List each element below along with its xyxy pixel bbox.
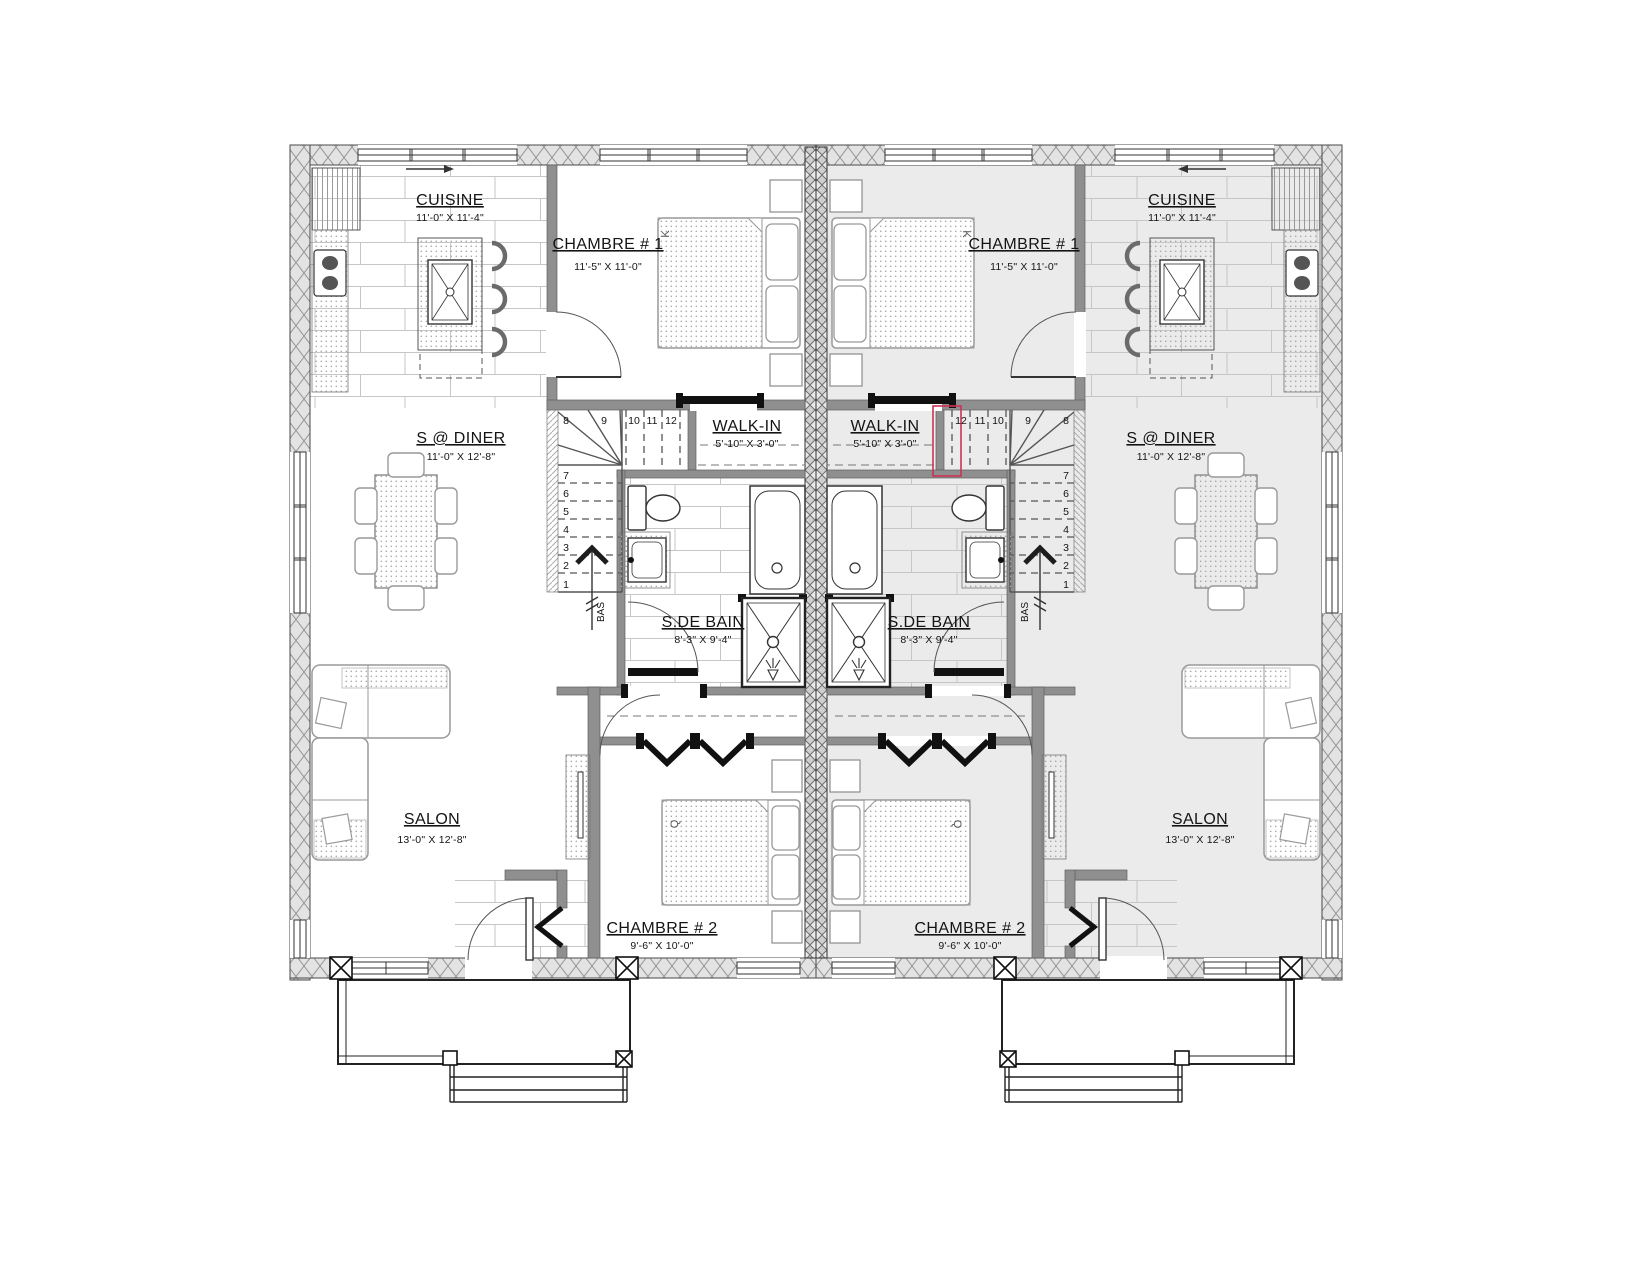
stair-num: 11: [975, 415, 986, 427]
room-label-cuisine-right: CUISINE: [1148, 192, 1216, 209]
room-label-chambre1-right: CHAMBRE # 1: [968, 236, 1079, 253]
room-dims-sdiner-right: 11'-0" X 12'-8": [1137, 451, 1206, 463]
tv: [578, 772, 583, 838]
throw-pillow: [322, 814, 352, 844]
stair-num: 6: [1063, 488, 1069, 500]
stair-num: 6: [563, 488, 569, 500]
throw-pillow: [316, 698, 347, 729]
room-label-chambre2-left: CHAMBRE # 2: [606, 920, 717, 937]
night-table: [772, 760, 802, 792]
bed-size-chambre1-left: K: [660, 230, 672, 238]
fridge: [312, 168, 360, 230]
room-label-salon-left: SALON: [404, 811, 460, 828]
stair-num: 10: [628, 415, 640, 427]
stair-num: 8: [1063, 415, 1069, 427]
floor-plan-drawing: CUISINE 11'-0" X 11'-4" CHAMBRE # 1 11'-…: [0, 0, 1650, 1275]
bath-door-leaf: [628, 668, 698, 676]
night-table: [772, 911, 802, 943]
bed-size-chambre1-right: K: [960, 230, 972, 238]
stair-num: 8: [563, 415, 569, 427]
stair-num: 4: [563, 524, 569, 536]
room-dims-walkin-right: 5'-10" X 3'-0": [853, 438, 916, 450]
stair-num: 9: [1025, 415, 1031, 427]
party-wall: [805, 147, 816, 958]
room-label-walkin-right: WALK-IN: [851, 418, 920, 435]
room-dims-walkin-left: 5'-10" X 3'-0": [715, 438, 778, 450]
stair-num: 12: [955, 415, 967, 427]
room-dims-cuisine-right: 11'-0" X 11'-4": [1148, 212, 1216, 224]
salon-furniture: [312, 665, 590, 860]
stair-num: 10: [992, 415, 1004, 427]
stair-num: 1: [563, 579, 569, 591]
stair-num: 7: [1063, 470, 1069, 482]
bed-size-chambre2-left: Q: [669, 819, 681, 828]
room-dims-sdebain-left: 8'-3" X 9'-4": [674, 634, 731, 646]
room-dims-sdiner-left: 11'-0" X 12'-8": [427, 451, 496, 463]
stair-num: 1: [1063, 579, 1069, 591]
bed-chambre2: [662, 760, 802, 943]
stair-num: 5: [1063, 506, 1069, 518]
stair-down-label-left: BAS: [596, 602, 607, 622]
shower: [742, 598, 805, 687]
room-label-sdiner-right: S @ DINER: [1126, 430, 1215, 447]
room-label-sdebain-right: S.DE BAIN: [888, 614, 971, 631]
burner: [322, 256, 338, 270]
room-dims-cuisine-left: 11'-0" X 11'-4": [416, 212, 484, 224]
bed-chambre1: [658, 180, 802, 386]
stair-num: 7: [563, 470, 569, 482]
room-label-cuisine-left: CUISINE: [416, 192, 484, 209]
floor-plan-page: CUISINE 11'-0" X 11'-4" CHAMBRE # 1 11'-…: [0, 0, 1650, 1275]
room-dims-salon-left: 13'-0" X 12'-8": [397, 834, 466, 846]
stair-down-label-right: BAS: [1020, 602, 1031, 622]
stair-num: 4: [1063, 524, 1069, 536]
stair-num: 2: [563, 560, 569, 572]
faucet: [628, 557, 634, 563]
room-label-chambre2-right: CHAMBRE # 2: [914, 920, 1025, 937]
bed-size-chambre2-right: Q: [951, 820, 963, 829]
stair-num: 3: [563, 542, 569, 554]
room-label-sdebain-left: S.DE BAIN: [662, 614, 745, 631]
night-table: [770, 180, 802, 212]
room-dims-chambre2-left: 9'-6" X 10'-0": [630, 940, 693, 952]
tub-drain: [772, 563, 782, 573]
toilet-tank: [628, 486, 646, 530]
bathtub: [750, 486, 805, 594]
room-label-walkin-left: WALK-IN: [713, 418, 782, 435]
dining-set: [355, 453, 457, 610]
front-door-leaf: [526, 898, 533, 960]
room-dims-salon-right: 13'-0" X 12'-8": [1165, 834, 1234, 846]
stair-num: 12: [665, 415, 677, 427]
room-dims-sdebain-right: 8'-3" X 9'-4": [900, 634, 957, 646]
stair-num: 2: [1063, 560, 1069, 572]
toilet-bowl: [646, 495, 680, 521]
room-dims-chambre2-right: 9'-6" X 10'-0": [938, 940, 1001, 952]
room-label-chambre1-left: CHAMBRE # 1: [552, 236, 663, 253]
room-dims-chambre1-right: 11'-5" X 11'-0": [990, 261, 1058, 273]
room-label-salon-right: SALON: [1172, 811, 1228, 828]
stair-num: 5: [563, 506, 569, 518]
night-table: [770, 354, 802, 386]
stair-num: 3: [1063, 542, 1069, 554]
room-dims-chambre1-left: 11'-5" X 11'-0": [574, 261, 642, 273]
burner: [322, 276, 338, 290]
room-label-sdiner-left: S @ DINER: [416, 430, 505, 447]
stair-num: 9: [601, 415, 607, 427]
stair-num: 11: [647, 415, 658, 427]
